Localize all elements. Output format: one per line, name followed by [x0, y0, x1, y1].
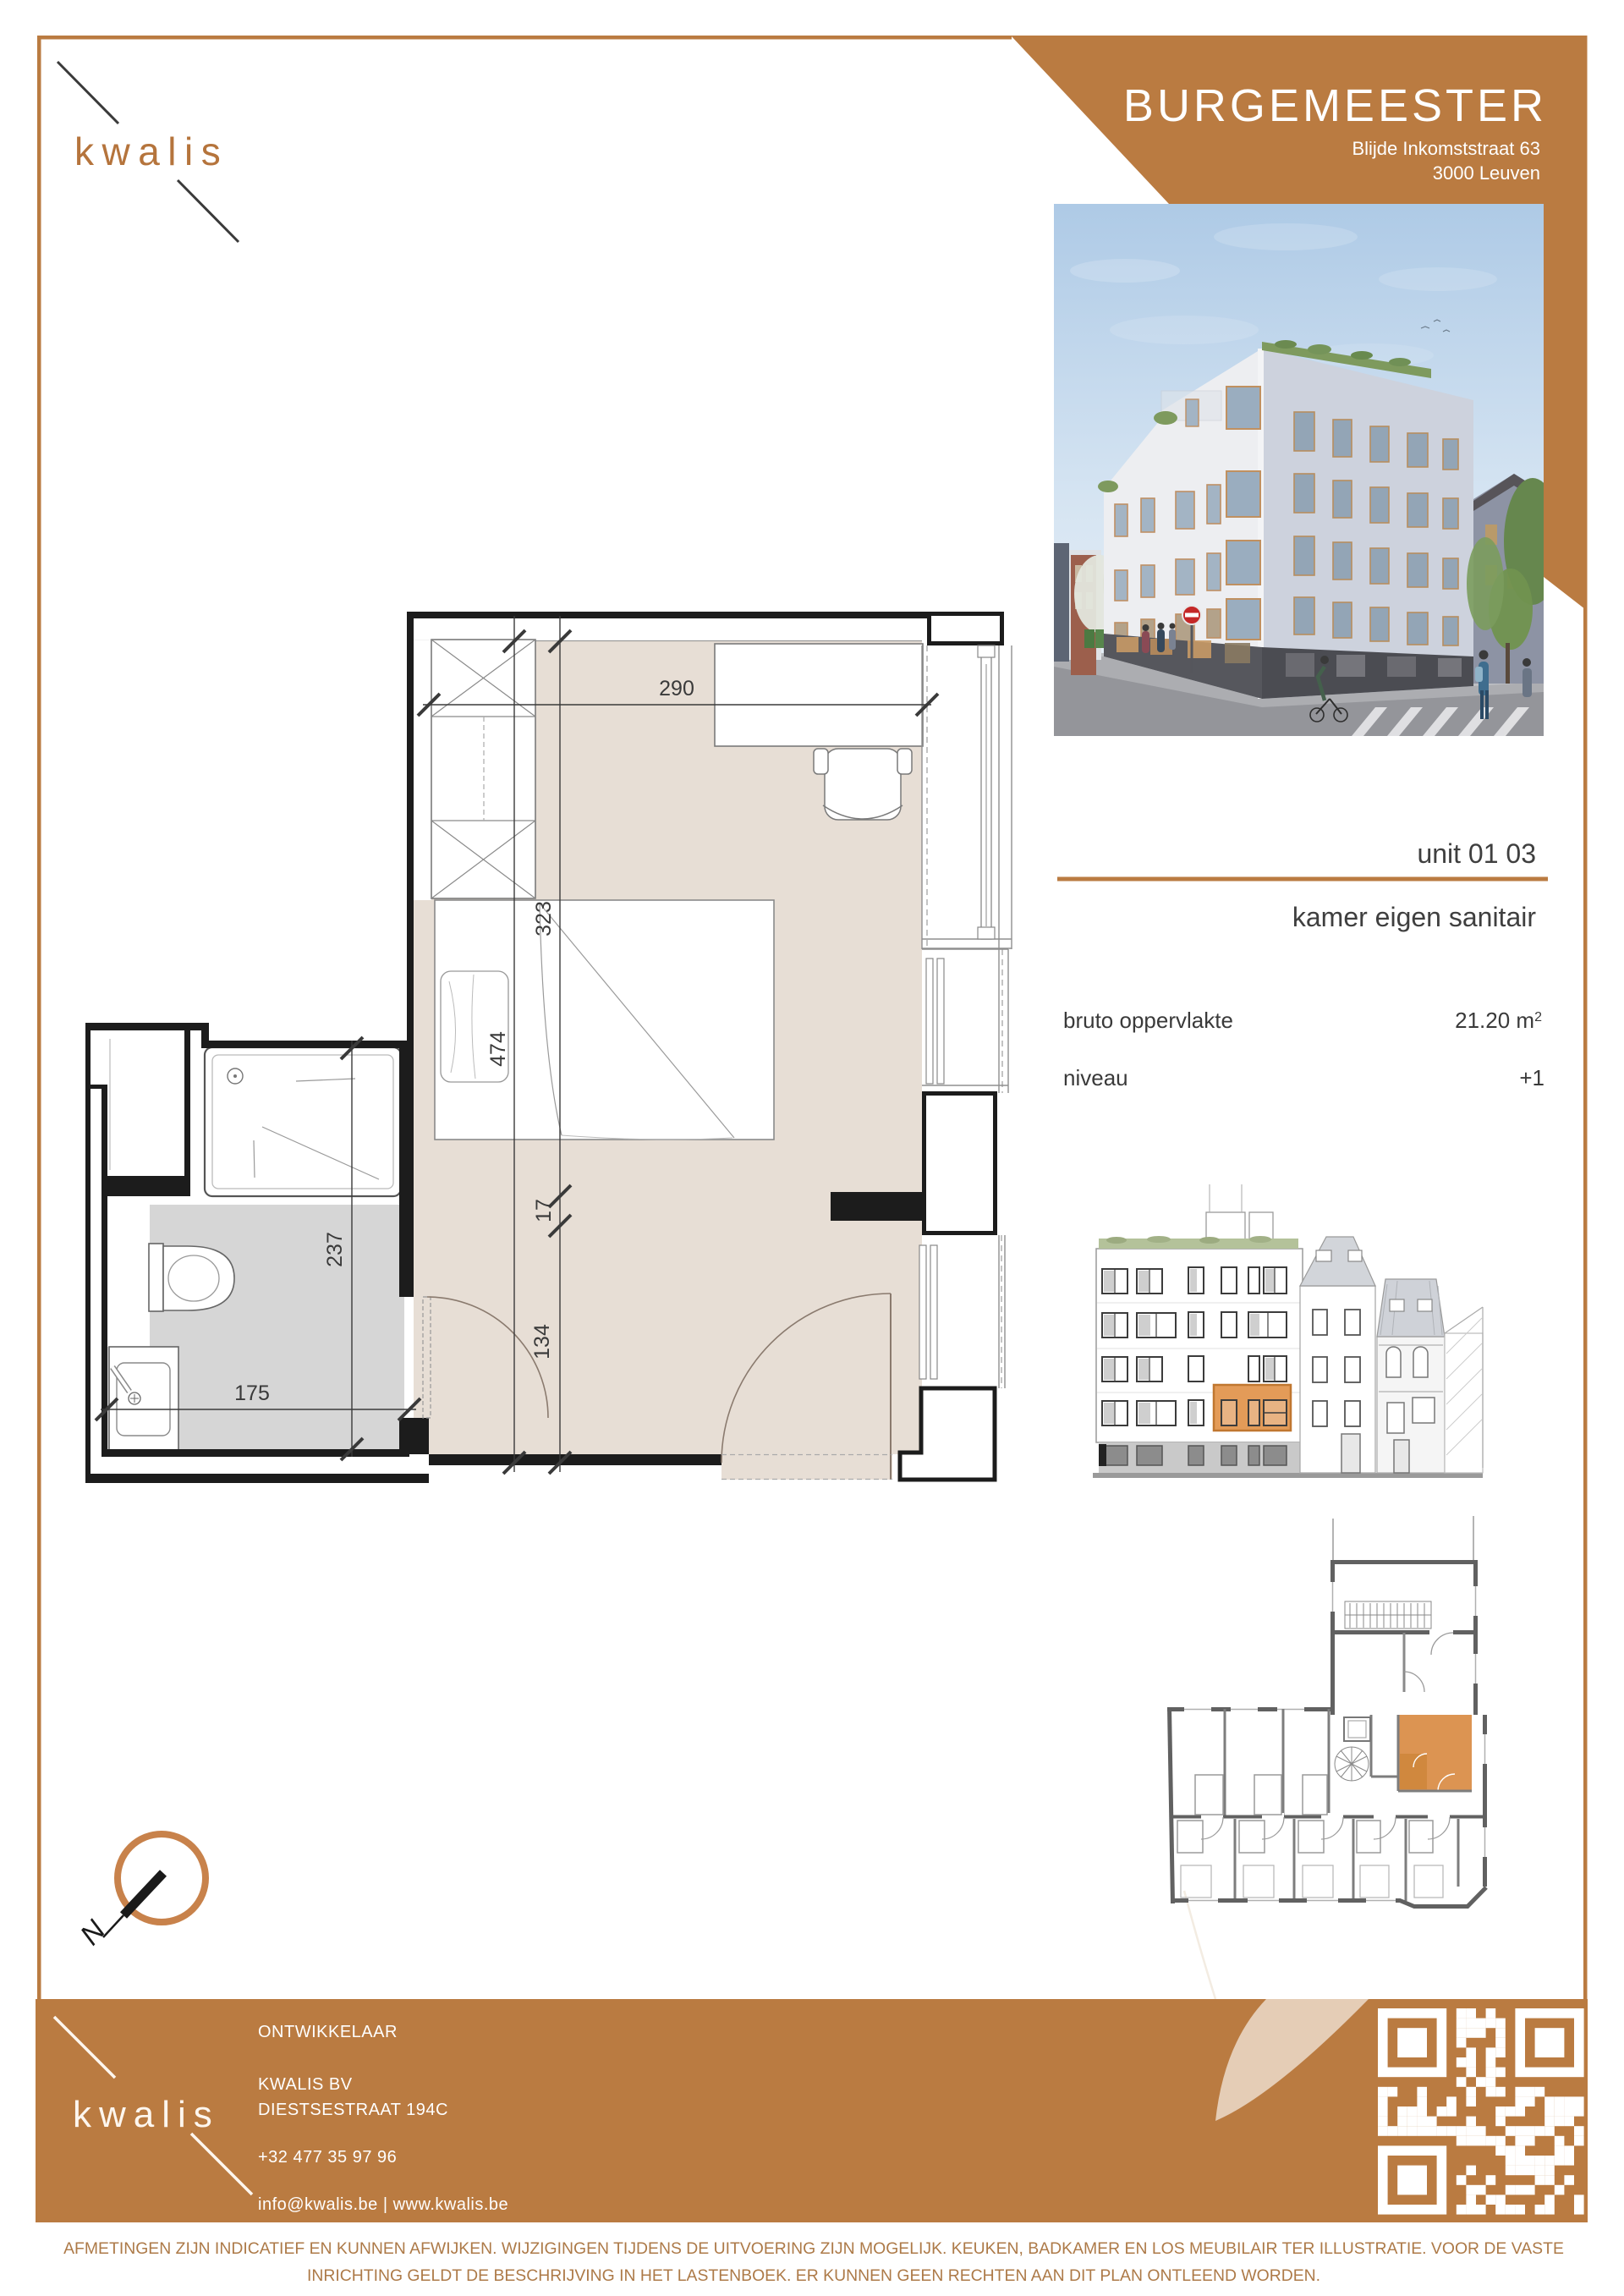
svg-text:info@kwalis.be | www.kwalis.: info@kwalis.be | www.kwalis.be [258, 2195, 508, 2214]
svg-text:134: 134 [530, 1324, 554, 1359]
svg-text:17: 17 [532, 1199, 556, 1222]
svg-text:kamer eigen sanitair: kamer eigen sanitair [1292, 902, 1536, 932]
svg-text:niveau: niveau [1063, 1065, 1128, 1090]
svg-text:21.20 m2: 21.20 m2 [1455, 1008, 1542, 1033]
svg-text:INRICHTING GELDT DE BESCHRIJVI: INRICHTING GELDT DE BESCHRIJVING IN HET … [307, 2266, 1320, 2285]
svg-text:323: 323 [532, 901, 556, 937]
svg-text:Blijde Inkomststraat 63: Blijde Inkomststraat 63 [1352, 138, 1540, 159]
svg-text:kwalis: kwalis [73, 2094, 220, 2135]
svg-text:175: 175 [234, 1381, 270, 1405]
svg-text:unit 01 03: unit 01 03 [1417, 838, 1536, 869]
svg-text:AFMETINGEN ZIJN INDICATIEF EN: AFMETINGEN ZIJN INDICATIEF EN KUNNEN AFW… [63, 2239, 1564, 2258]
svg-text:+1: +1 [1519, 1065, 1544, 1090]
svg-text:+32 477 35 97 96: +32 477 35 97 96 [258, 2148, 397, 2167]
svg-text:237: 237 [323, 1232, 347, 1267]
svg-text:BURGEMEESTER: BURGEMEESTER [1123, 80, 1547, 131]
svg-text:kwalis: kwalis [74, 129, 228, 173]
svg-text:DIESTSESTRAAT 194C: DIESTSESTRAAT 194C [258, 2101, 448, 2119]
svg-text:474: 474 [486, 1031, 510, 1067]
svg-text:ONTWIKKELAAR: ONTWIKKELAAR [258, 2023, 398, 2041]
svg-text:KWALIS BV: KWALIS BV [258, 2075, 353, 2094]
svg-text:3000 Leuven: 3000 Leuven [1433, 162, 1540, 184]
svg-text:290: 290 [659, 677, 694, 700]
svg-text:bruto oppervlakte: bruto oppervlakte [1063, 1008, 1233, 1033]
